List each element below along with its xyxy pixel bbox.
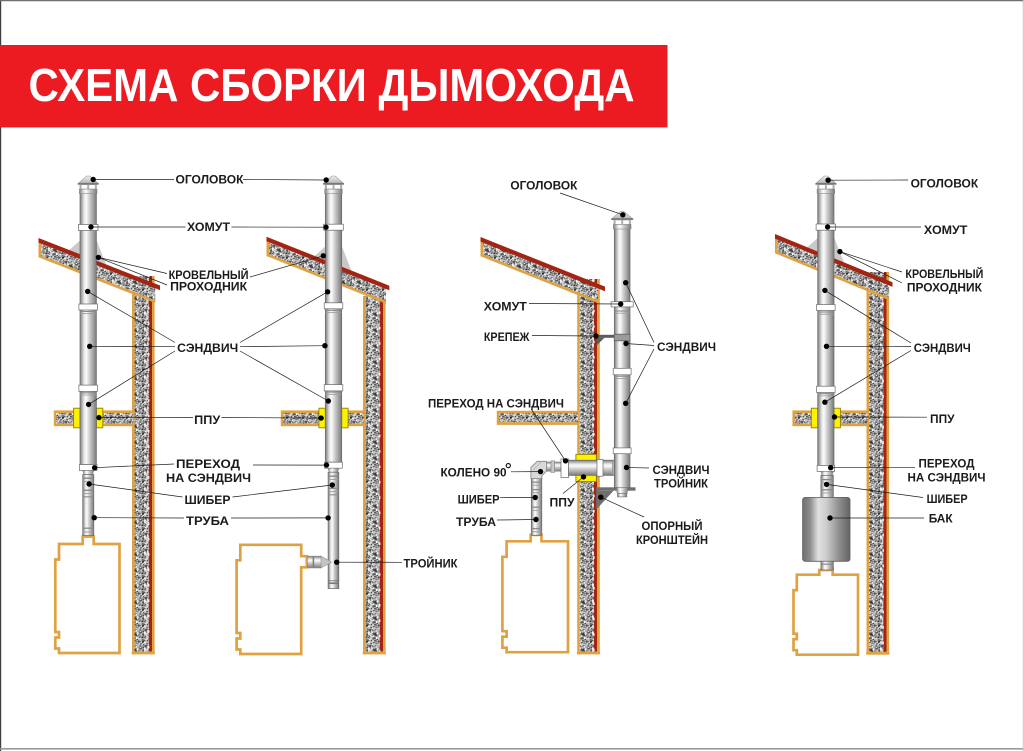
svg-text:СЭНДВИЧ: СЭНДВИЧ <box>657 340 716 354</box>
svg-text:ППУ: ППУ <box>550 496 576 510</box>
svg-text:ТРОЙНИК: ТРОЙНИК <box>654 475 709 490</box>
svg-text:НА СЭНДВИЧ: НА СЭНДВИЧ <box>908 470 986 484</box>
svg-text:ТРУБА: ТРУБА <box>186 514 229 528</box>
svg-text:ХОМУТ: ХОМУТ <box>484 299 528 313</box>
svg-text:ШИБЕР: ШИБЕР <box>927 492 968 506</box>
svg-text:КРОВЕЛЬНЫЙ: КРОВЕЛЬНЫЙ <box>905 266 983 281</box>
svg-text:ОГОЛОВОК: ОГОЛОВОК <box>176 173 245 187</box>
svg-text:КРЕПЕЖ: КРЕПЕЖ <box>484 330 530 344</box>
svg-text:ТРОЙНИК: ТРОЙНИК <box>404 556 459 571</box>
svg-text:ППУ: ППУ <box>930 412 955 426</box>
svg-text:ШИБЕР: ШИБЕР <box>185 493 231 507</box>
svg-text:ОГОЛОВОК: ОГОЛОВОК <box>510 178 578 192</box>
svg-text:ТРУБА: ТРУБА <box>456 515 496 529</box>
svg-text:СЭНДВИЧ: СЭНДВИЧ <box>653 463 710 477</box>
svg-text:ШИБЕР: ШИБЕР <box>458 492 500 506</box>
svg-text:ХОМУТ: ХОМУТ <box>924 223 968 237</box>
svg-text:СЭНДВИЧ: СЭНДВИЧ <box>914 341 971 355</box>
svg-text:ПРОХОДНИК: ПРОХОДНИК <box>907 281 983 295</box>
svg-text:СЭНДВИЧ: СЭНДВИЧ <box>177 341 238 355</box>
svg-text:ППУ: ППУ <box>194 413 221 427</box>
svg-text:КРОНШТЕЙН: КРОНШТЕЙН <box>636 532 708 547</box>
svg-text:БАК: БАК <box>929 512 954 526</box>
svg-text:СХЕМА СБОРКИ ДЫМОХОДА: СХЕМА СБОРКИ ДЫМОХОДА <box>29 59 635 111</box>
svg-text:ПРОХОДНИК: ПРОХОДНИК <box>170 280 248 294</box>
svg-text:ПЕРЕХОД: ПЕРЕХОД <box>919 457 975 471</box>
svg-text:НА СЭНДВИЧ: НА СЭНДВИЧ <box>166 471 251 485</box>
svg-text:ПЕРЕХОД НА СЭНДВИЧ: ПЕРЕХОД НА СЭНДВИЧ <box>428 396 564 410</box>
svg-text:ОПОРНЫЙ: ОПОРНЫЙ <box>642 518 703 533</box>
svg-text:КОЛЕНО 90: КОЛЕНО 90 <box>441 465 507 479</box>
svg-text:ОГОЛОВОК: ОГОЛОВОК <box>911 177 979 191</box>
svg-text:ХОМУТ: ХОМУТ <box>187 220 231 234</box>
svg-text:ПЕРЕХОД: ПЕРЕХОД <box>176 457 240 471</box>
